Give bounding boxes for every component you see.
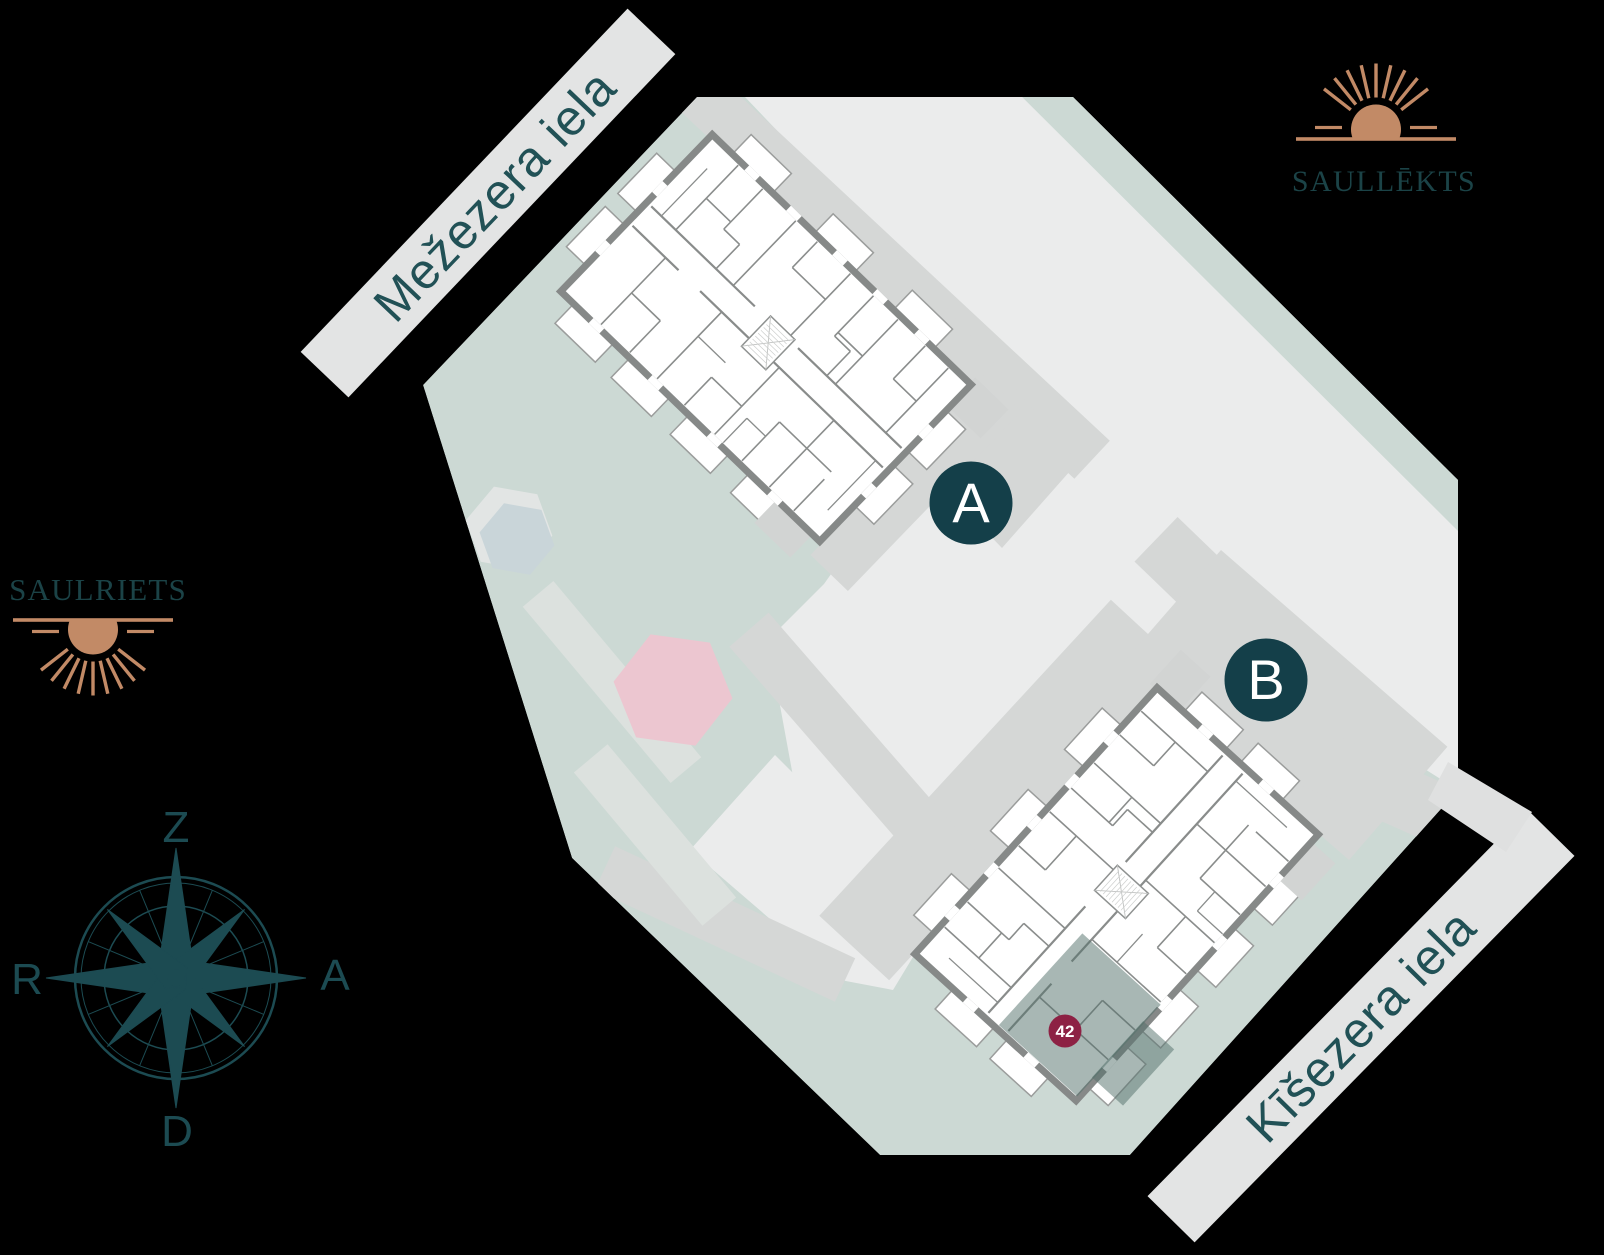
- svg-text:B: B: [1247, 648, 1284, 711]
- svg-text:Z: Z: [163, 803, 190, 852]
- svg-text:42: 42: [1056, 1022, 1075, 1041]
- svg-text:R: R: [11, 955, 43, 1004]
- svg-text:A: A: [952, 471, 990, 534]
- svg-text:SAULLĒKTS: SAULLĒKTS: [1292, 165, 1476, 198]
- svg-text:A: A: [320, 951, 350, 1000]
- svg-text:D: D: [161, 1107, 193, 1156]
- svg-text:SAULRIETS: SAULRIETS: [9, 572, 187, 607]
